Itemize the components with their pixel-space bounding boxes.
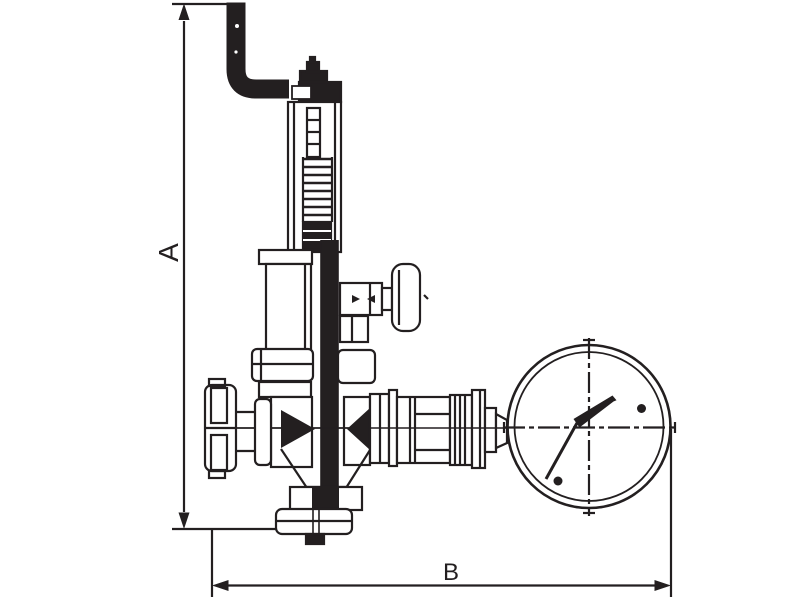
svg-text:A: A — [153, 243, 184, 262]
svg-text:B: B — [443, 559, 459, 586]
